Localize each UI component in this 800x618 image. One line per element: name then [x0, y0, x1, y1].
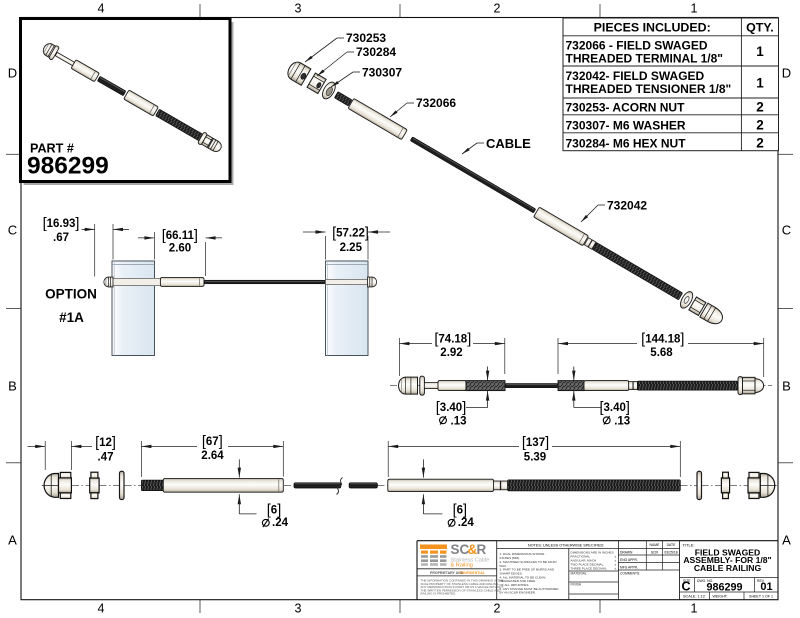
svg-text:SCR: SCR — [651, 550, 659, 554]
svg-text:2: 2 — [756, 135, 764, 150]
svg-text:730253: 730253 — [346, 31, 386, 45]
svg-text:2: 2 — [756, 100, 764, 115]
svg-text:730284: 730284 — [356, 45, 396, 59]
svg-text:B: B — [782, 379, 791, 394]
svg-text:730307- M6 WASHER: 730307- M6 WASHER — [566, 118, 686, 132]
svg-text:2: 2 — [494, 602, 501, 616]
svg-text:QTY.: QTY. — [746, 20, 774, 34]
svg-text:DRAWN: DRAWN — [620, 550, 633, 554]
svg-text:732066: 732066 — [416, 96, 456, 110]
svg-text:730307: 730307 — [362, 66, 402, 80]
svg-text:[3.40]: [3.40] — [599, 400, 629, 416]
svg-text:B: B — [8, 379, 17, 394]
svg-text:1: 1 — [691, 2, 698, 16]
svg-text:732042- FIELD SWAGED: 732042- FIELD SWAGED — [566, 69, 705, 83]
svg-text:D: D — [782, 66, 791, 81]
svg-text:CABLE: CABLE — [486, 136, 531, 151]
svg-text:C: C — [8, 223, 17, 238]
svg-text:5.39: 5.39 — [524, 452, 546, 464]
svg-text:MFG APPR.: MFG APPR. — [620, 565, 638, 569]
svg-text:2.60: 2.60 — [169, 242, 191, 254]
svg-text:[6]: [6] — [453, 503, 467, 519]
svg-text:732042: 732042 — [607, 199, 647, 213]
svg-text:THREADED TERMINAL 1/8": THREADED TERMINAL 1/8" — [566, 51, 723, 65]
svg-text:1: 1 — [756, 75, 764, 90]
svg-text:A: A — [8, 533, 17, 548]
svg-text:THREADED TENSIONER 1/8": THREADED TENSIONER 1/8" — [566, 82, 732, 96]
svg-text:A: A — [782, 533, 791, 548]
svg-text:C: C — [681, 580, 690, 594]
svg-text:986299: 986299 — [27, 153, 109, 180]
svg-text:730253- ACORN NUT: 730253- ACORN NUT — [566, 101, 686, 115]
svg-text:01: 01 — [760, 581, 772, 593]
svg-text:[3.40]: [3.40] — [436, 400, 466, 416]
svg-text:CONFIDENTIAL: CONFIDENTIAL — [459, 571, 486, 575]
svg-text:THREE PLACE DECIMAL: THREE PLACE DECIMAL — [571, 566, 607, 570]
svg-text:3: 3 — [295, 2, 302, 16]
svg-text:[12]: [12] — [95, 435, 116, 451]
svg-text:[57.22]: [57.22] — [332, 225, 369, 241]
svg-text:2.25: 2.25 — [340, 242, 363, 254]
svg-text:RAILING IS PROHIBITED.: RAILING IS PROHIBITED. — [421, 592, 457, 596]
svg-text:R: R — [477, 542, 487, 557]
svg-text:.47: .47 — [98, 452, 114, 464]
svg-text:1: 1 — [756, 44, 764, 59]
svg-text:5.68: 5.68 — [650, 347, 673, 359]
svg-text:2: 2 — [756, 117, 764, 132]
svg-text:1: 1 — [691, 602, 698, 616]
svg-text:C: C — [782, 223, 791, 238]
svg-text:±: ± — [615, 566, 617, 570]
svg-text:2. MACHINED SURFACES TO BE 63U: 2. MACHINED SURFACES TO BE 63UIN — [500, 560, 557, 564]
svg-text:DATE: DATE — [667, 543, 677, 547]
svg-text:[67]: [67] — [202, 434, 223, 450]
svg-text:[144.18]: [144.18] — [641, 331, 684, 347]
svg-text:[137]: [137] — [522, 435, 549, 451]
svg-text:4: 4 — [98, 2, 105, 16]
svg-text:.24: .24 — [458, 517, 475, 529]
svg-text:3: 3 — [295, 602, 302, 616]
svg-text:4: 4 — [98, 602, 105, 616]
svg-text:.67: .67 — [53, 232, 69, 244]
svg-text:MATERIAL: MATERIAL — [571, 572, 587, 576]
svg-text:ENG APPR.: ENG APPR. — [620, 558, 638, 562]
svg-text:WEIGHT:: WEIGHT: — [713, 595, 728, 599]
svg-text:03/25/18: 03/25/18 — [664, 550, 677, 554]
svg-text:COMMENTS:: COMMENTS: — [620, 572, 640, 576]
svg-text:SCALE: 1:12: SCALE: 1:12 — [683, 595, 705, 599]
svg-text:NAME: NAME — [650, 543, 661, 547]
svg-text:.13: .13 — [451, 415, 467, 427]
svg-text:[16.93]: [16.93] — [43, 216, 80, 232]
svg-text:NOTES: UNLESS OTHERWISE SPECI: NOTES: UNLESS OTHERWISE SPECIFIED: — [528, 544, 605, 548]
svg-text:.13: .13 — [614, 415, 630, 427]
svg-text:986299: 986299 — [706, 581, 742, 593]
svg-text:PIECES INCLUDED:: PIECES INCLUDED: — [594, 20, 711, 34]
svg-text:2.64: 2.64 — [201, 450, 224, 462]
svg-text:2: 2 — [494, 2, 501, 16]
svg-text:2.92: 2.92 — [440, 347, 462, 359]
svg-text:CABLE RAILING: CABLE RAILING — [694, 563, 762, 573]
svg-text:OPTION: OPTION — [45, 287, 97, 302]
svg-text:[6]: [6] — [267, 503, 281, 519]
svg-text:FINISH: FINISH — [571, 583, 582, 587]
svg-text:& Railing: & Railing — [451, 563, 473, 569]
svg-text:SHEET 1 OF 1: SHEET 1 OF 1 — [749, 595, 773, 599]
svg-text:732066 - FIELD SWAGED: 732066 - FIELD SWAGED — [566, 38, 708, 52]
svg-text:#1A: #1A — [59, 310, 84, 325]
svg-text:TITLE:: TITLE: — [683, 543, 695, 548]
svg-text:730284- M6 HEX NUT: 730284- M6 HEX NUT — [566, 136, 687, 150]
svg-text:BY AN SC&R ENGINEER.: BY AN SC&R ENGINEER. — [500, 591, 537, 595]
svg-text:[74.18]: [74.18] — [434, 331, 471, 347]
svg-text:D: D — [8, 66, 17, 81]
svg-text:.24: .24 — [272, 517, 289, 529]
